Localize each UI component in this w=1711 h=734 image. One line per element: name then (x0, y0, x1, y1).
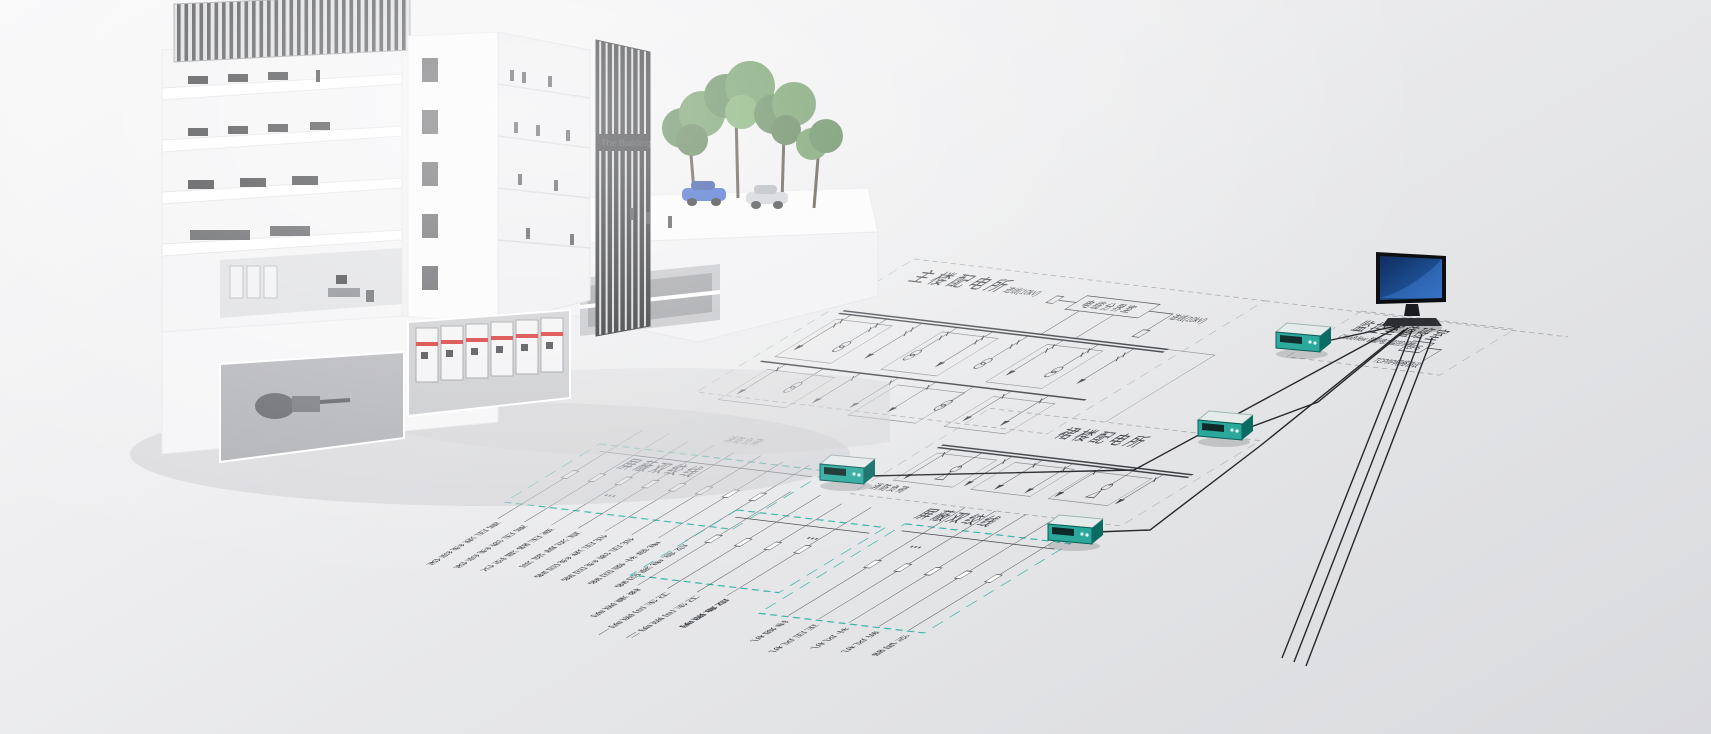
blue-car (682, 181, 726, 206)
atrium (498, 32, 590, 324)
load-label: 卫生间照明一 (593, 591, 673, 636)
meter-row-middle (705, 535, 812, 554)
load-label: 补风机 (807, 627, 852, 650)
ellipsis-right: ··· (900, 541, 930, 554)
monitor-base (1382, 318, 1442, 326)
tower-body (162, 36, 402, 332)
office-furniture (188, 70, 330, 240)
load-label: 排烟机 (747, 620, 792, 643)
stp-group-left: 屏蔽双绞线 ··· 高压进线综保 高压馈线 (405, 428, 853, 590)
data-collector-3 (1196, 408, 1254, 448)
podium-substation-title: 裙楼配电所 (1048, 426, 1156, 450)
pump-machinery (255, 393, 350, 419)
scene: 主楼配电所 电缆分界室 进线(10kV) 进线(10kV) (0, 0, 1711, 734)
penthouse-ribbed-roof (174, 0, 410, 62)
cars (630, 181, 788, 228)
switchgear-row (416, 318, 563, 382)
meter-row-right (864, 560, 1002, 582)
secondary-bus (761, 361, 1086, 400)
fire-load-label-main: 消防负荷 (720, 435, 768, 447)
data-collector-1 (818, 452, 876, 492)
basement-cutaway (162, 310, 570, 462)
silver-car (746, 185, 788, 209)
load-label: 直流屏监测 (515, 531, 584, 568)
main-bus (843, 311, 1168, 350)
stp-label-right: 屏蔽双绞线 (910, 507, 1008, 529)
core-column (408, 32, 498, 330)
podium-bus (942, 445, 1193, 475)
building-sign (598, 134, 648, 151)
monitor-stand (1404, 304, 1420, 316)
people-silhouettes (510, 70, 574, 245)
load-label: 空调器 (868, 634, 913, 657)
protocol-label: TCP/IP网络协议 (1369, 356, 1426, 368)
main-feeder-row-1 (775, 314, 1137, 391)
stp-group-right: 屏蔽双绞线 ··· 排烟机 正压风机 补风机 (705, 504, 1103, 665)
right-load-labels: 排烟机 正压风机 补风机 新风机 空调器 (735, 620, 913, 665)
louver-wall: The Building (596, 40, 651, 336)
left-load-labels: 高压进线综保 高压馈线综保 变压器温控仪 直流屏监测 低压进线回路 低压馈线回路… (423, 521, 691, 588)
monitoring-computer (1372, 250, 1452, 336)
main-feeder-row-2 (718, 363, 1065, 434)
middle-load-labels: 楼道照明 卫生间照明一 卫生间照明二 应急照明 (563, 588, 732, 643)
podium-people (630, 208, 672, 228)
building-sign-text: The Building (601, 138, 651, 148)
cutaway-floors (162, 70, 402, 318)
data-collector-4 (1274, 320, 1332, 360)
load-label: 卫生间照明二 (622, 595, 702, 640)
load-label: 新风机 (837, 631, 882, 654)
trees (662, 61, 843, 208)
machine-room (220, 352, 404, 462)
control-room (220, 248, 402, 318)
data-collector-2 (1046, 512, 1104, 552)
